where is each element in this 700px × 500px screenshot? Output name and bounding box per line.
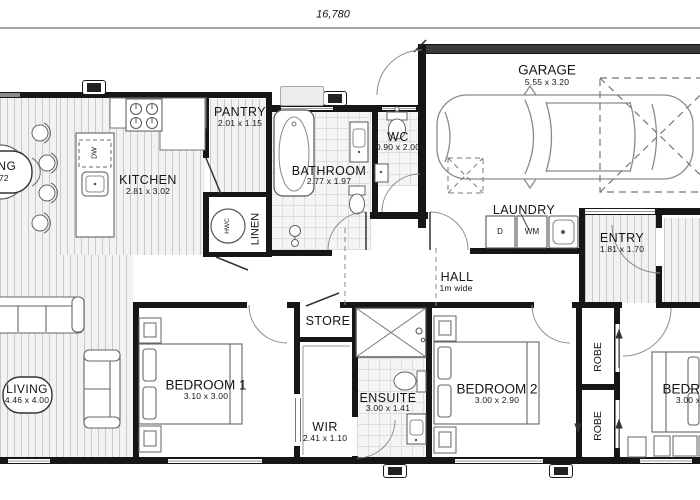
entry-label: ENTRY bbox=[600, 232, 644, 245]
pedestal-basin bbox=[290, 226, 301, 247]
dryer-label: D bbox=[497, 228, 503, 236]
ensuite-vanity bbox=[407, 414, 426, 444]
garage-side-door-arc bbox=[377, 50, 422, 95]
bedroom3-label: BEDROOM 3 bbox=[662, 382, 700, 396]
car-mirror bbox=[524, 179, 536, 188]
bathroom-dims: 2.77 x 1.97 bbox=[307, 177, 351, 186]
bedroom2-door-arc bbox=[532, 305, 570, 343]
car bbox=[437, 86, 693, 188]
pantry-dims: 2.01 x 1.15 bbox=[218, 119, 262, 128]
entry-dims: 1.81 x 1.70 bbox=[600, 245, 644, 254]
kitchen-label: KITCHEN bbox=[119, 174, 177, 187]
bedroom1-label: BEDROOM 1 bbox=[165, 378, 246, 392]
car-mirror bbox=[524, 86, 536, 95]
bedroom1-door-arc bbox=[249, 305, 287, 343]
bedroom1-dims: 3.10 x 3.00 bbox=[184, 392, 228, 401]
bedroom2-dims: 3.00 x 2.90 bbox=[475, 396, 519, 405]
sofa-vertical bbox=[84, 350, 120, 428]
pantry-door-leaf bbox=[206, 158, 221, 194]
bedroom3-dims: 3.00 x 2.90 bbox=[676, 396, 700, 405]
hall-dims: 1m wide bbox=[439, 284, 472, 293]
floor-plan: 16,780 GARAGE 5.55 x 3.20 PANTRY 2.01 x … bbox=[0, 0, 700, 500]
living-label: LIVING bbox=[6, 383, 48, 395]
linen-label: LINEN bbox=[251, 213, 262, 245]
dw-label: DW bbox=[92, 147, 99, 159]
ensuite-door-arc bbox=[357, 420, 395, 458]
shower bbox=[356, 308, 426, 357]
bedroom3-furniture bbox=[628, 436, 700, 457]
garage-dims: 5.55 x 3.20 bbox=[525, 78, 569, 87]
bedroom3-door-arc bbox=[623, 308, 671, 356]
pantry-label: PANTRY bbox=[214, 106, 266, 119]
ensuite-dims: 3.00 x 1.41 bbox=[366, 404, 410, 413]
wc-dims: 0.90 x 2.00 bbox=[376, 143, 420, 152]
ensuite-toilet bbox=[394, 371, 426, 392]
garage-door-arc bbox=[430, 212, 468, 250]
dining-label: DINING bbox=[0, 160, 16, 172]
garage-label: GARAGE bbox=[518, 63, 576, 77]
kitchen-dims: 2.81 x 3.02 bbox=[126, 187, 170, 196]
wir-label: WIR bbox=[312, 421, 338, 434]
store-door-leaf bbox=[306, 293, 339, 306]
wc-basin bbox=[375, 164, 388, 182]
bathroom-door-arc bbox=[328, 212, 366, 250]
robe-lower-label: ROBE bbox=[593, 411, 604, 441]
hall-label: HALL bbox=[441, 271, 474, 284]
sofa-horizontal bbox=[0, 297, 84, 333]
dining-chairs bbox=[32, 123, 57, 233]
dining-dims: 2.72 bbox=[0, 174, 9, 183]
laundry-label: LAUNDRY bbox=[493, 204, 555, 217]
wir-dims: 2.41 x 1.10 bbox=[303, 434, 347, 443]
robe-upper-label: ROBE bbox=[593, 342, 604, 372]
linen-door-leaf bbox=[216, 257, 248, 270]
bedroom2-label: BEDROOM 2 bbox=[456, 382, 537, 396]
washer-label: WM bbox=[525, 228, 539, 236]
store-label: STORE bbox=[306, 315, 351, 328]
kitchen-sink bbox=[82, 172, 108, 196]
total-width-dimension: 16,780 bbox=[316, 10, 350, 21]
section-line bbox=[345, 228, 436, 306]
hwc-label: HWC bbox=[225, 218, 232, 234]
bathroom-vanity bbox=[350, 122, 368, 162]
living-dims: 4.46 x 4.00 bbox=[5, 396, 49, 405]
bathroom-toilet bbox=[349, 186, 365, 214]
